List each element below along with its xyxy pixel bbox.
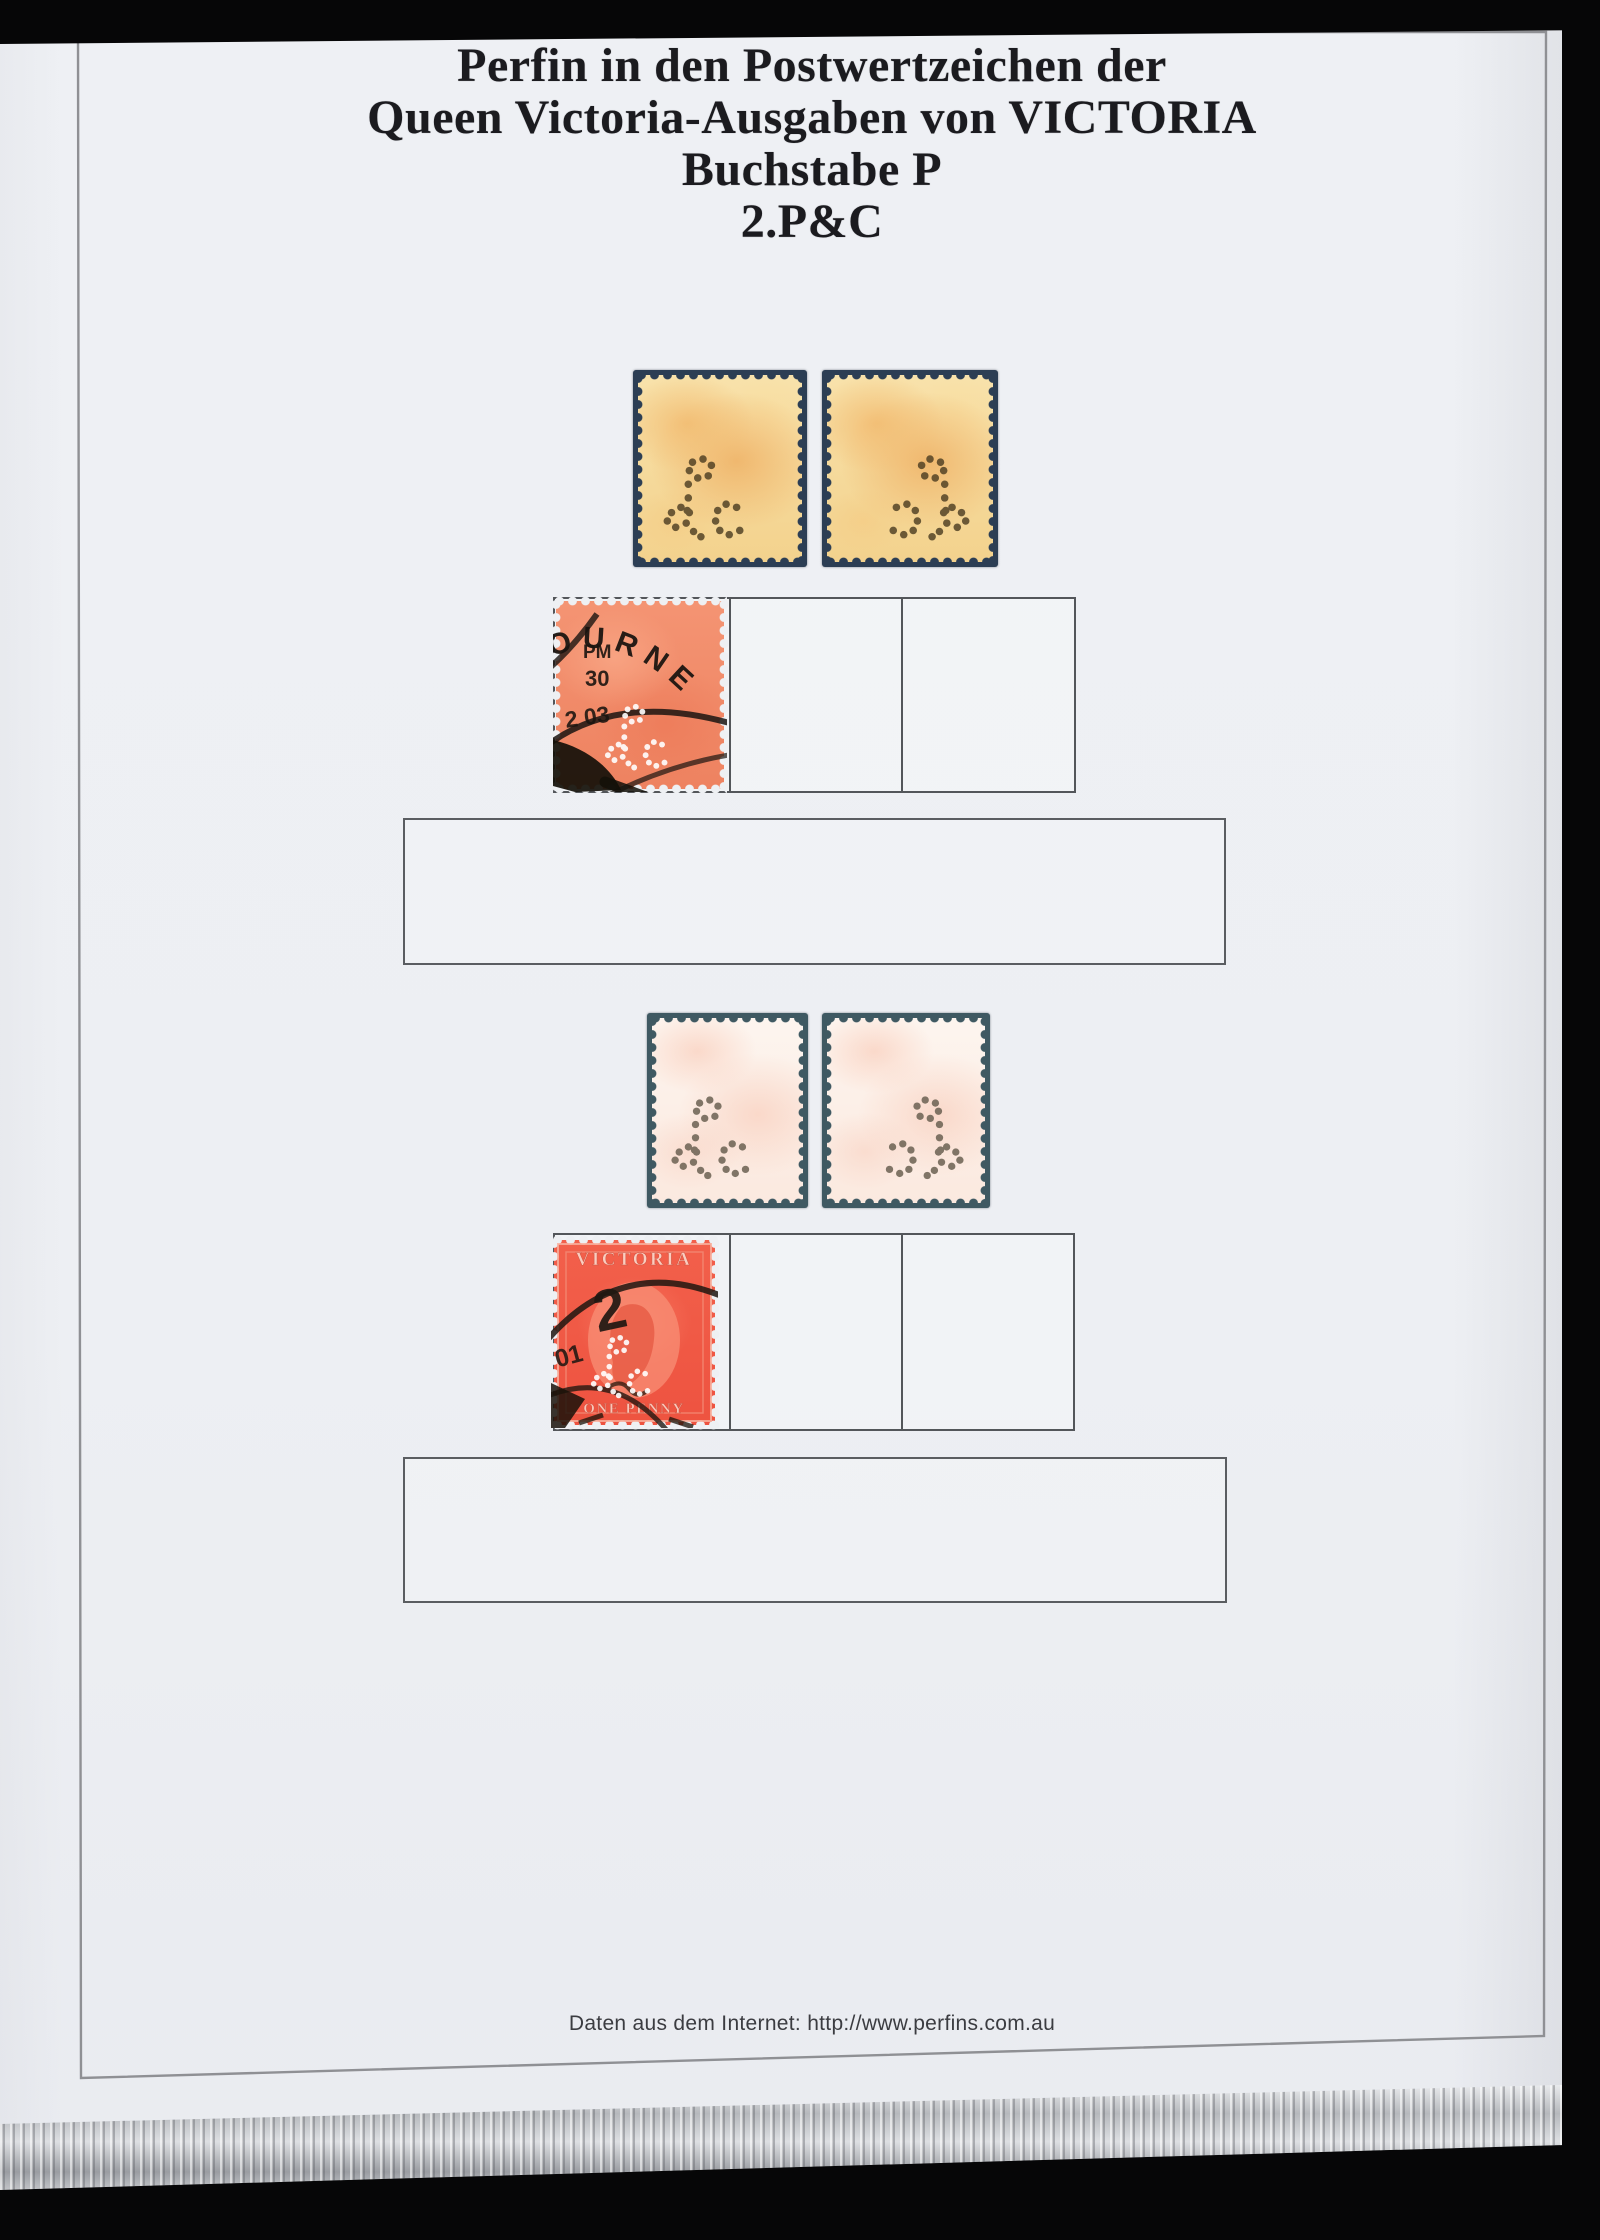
page-title: Perfin in den Postwertzeichen der Queen … xyxy=(78,40,1546,248)
cell-divider xyxy=(729,1235,731,1429)
postmark-victoria: VICTORIA ONE PENNY 2 01 xyxy=(551,1237,718,1428)
svg-text:OURNE: OURNE xyxy=(553,621,706,703)
description-box-1 xyxy=(403,818,1226,965)
stamp-back-pink-right xyxy=(822,1013,990,1208)
stamp-back-orange-left xyxy=(633,370,807,567)
perfin-pattern xyxy=(633,370,807,567)
title-line-2: Queen Victoria-Ausgaben von VICTORIA xyxy=(78,92,1546,144)
stamp-back-orange-right xyxy=(822,370,998,567)
cancel-arc-text: OURNE xyxy=(553,621,706,703)
postmark-melbourne: OURNE PM 30 2 03 xyxy=(553,598,727,792)
description-box-2 xyxy=(403,1457,1227,1603)
scanned-album-page: Perfin in den Postwertzeichen der Queen … xyxy=(0,0,1600,2240)
scanner-background-right xyxy=(1562,0,1600,2240)
perfin-pattern-mirrored xyxy=(822,370,998,567)
perfin-pattern xyxy=(647,1013,808,1208)
cancel-pm: PM xyxy=(583,642,612,663)
perfin-pattern-mirrored xyxy=(822,1013,990,1208)
cell-divider xyxy=(901,1235,903,1429)
stamp-country-label: VICTORIA xyxy=(576,1249,693,1270)
cancel-day: 30 xyxy=(585,666,609,691)
title-line-1: Perfin in den Postwertzeichen der xyxy=(78,40,1546,92)
cell-divider xyxy=(729,599,731,791)
cancel-date: 2 03 xyxy=(563,701,611,733)
cell-divider xyxy=(901,599,903,791)
footer-caption: Daten aus dem Internet: http://www.perfi… xyxy=(78,2012,1546,2036)
title-line-4: 2.P&C xyxy=(78,196,1546,248)
stamp-back-pink-left xyxy=(647,1013,808,1208)
cancel-digits: 01 xyxy=(552,1339,586,1373)
title-line-3: Buchstabe P xyxy=(78,144,1546,196)
stamp-melbourne-cancel: OURNE PM 30 2 03 xyxy=(553,598,727,792)
stamp-victoria-red: VICTORIA ONE PENNY 2 01 xyxy=(551,1237,718,1428)
